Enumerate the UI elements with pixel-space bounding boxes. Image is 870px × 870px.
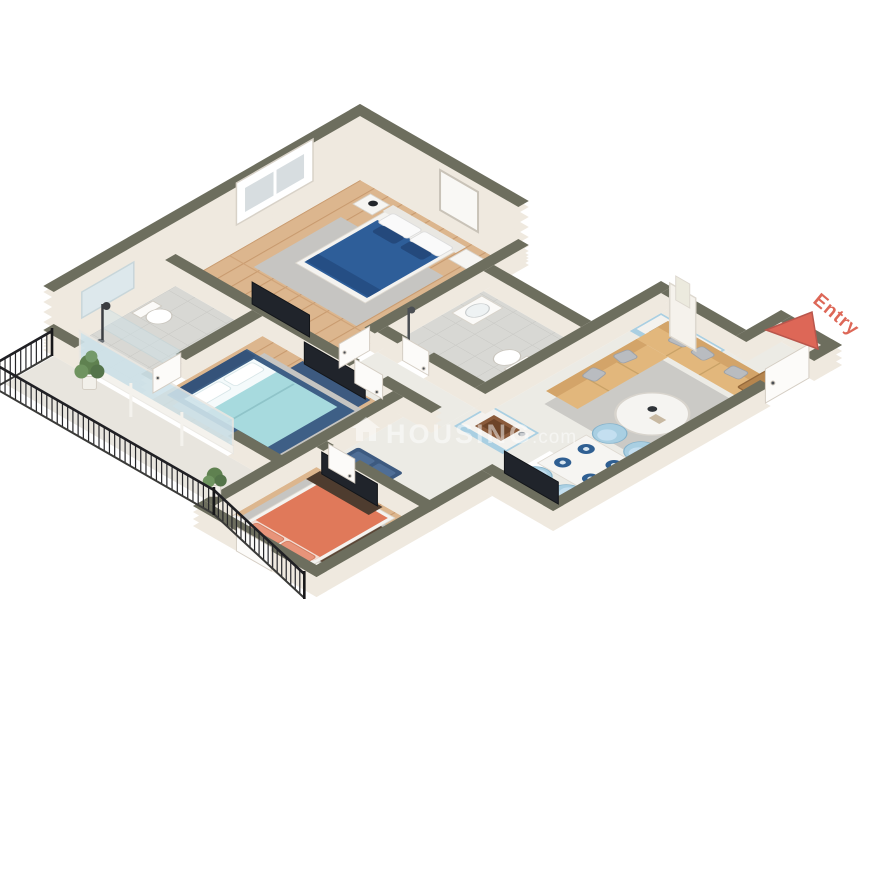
watermark-suffix: .com bbox=[532, 427, 577, 448]
floor-plan-image: HOUSING .com Entry bbox=[0, 0, 870, 870]
iso-scene bbox=[0, 68, 870, 652]
floor-plan-svg: HOUSING .com Entry bbox=[0, 0, 870, 870]
watermark-brand: HOUSING bbox=[386, 419, 533, 449]
